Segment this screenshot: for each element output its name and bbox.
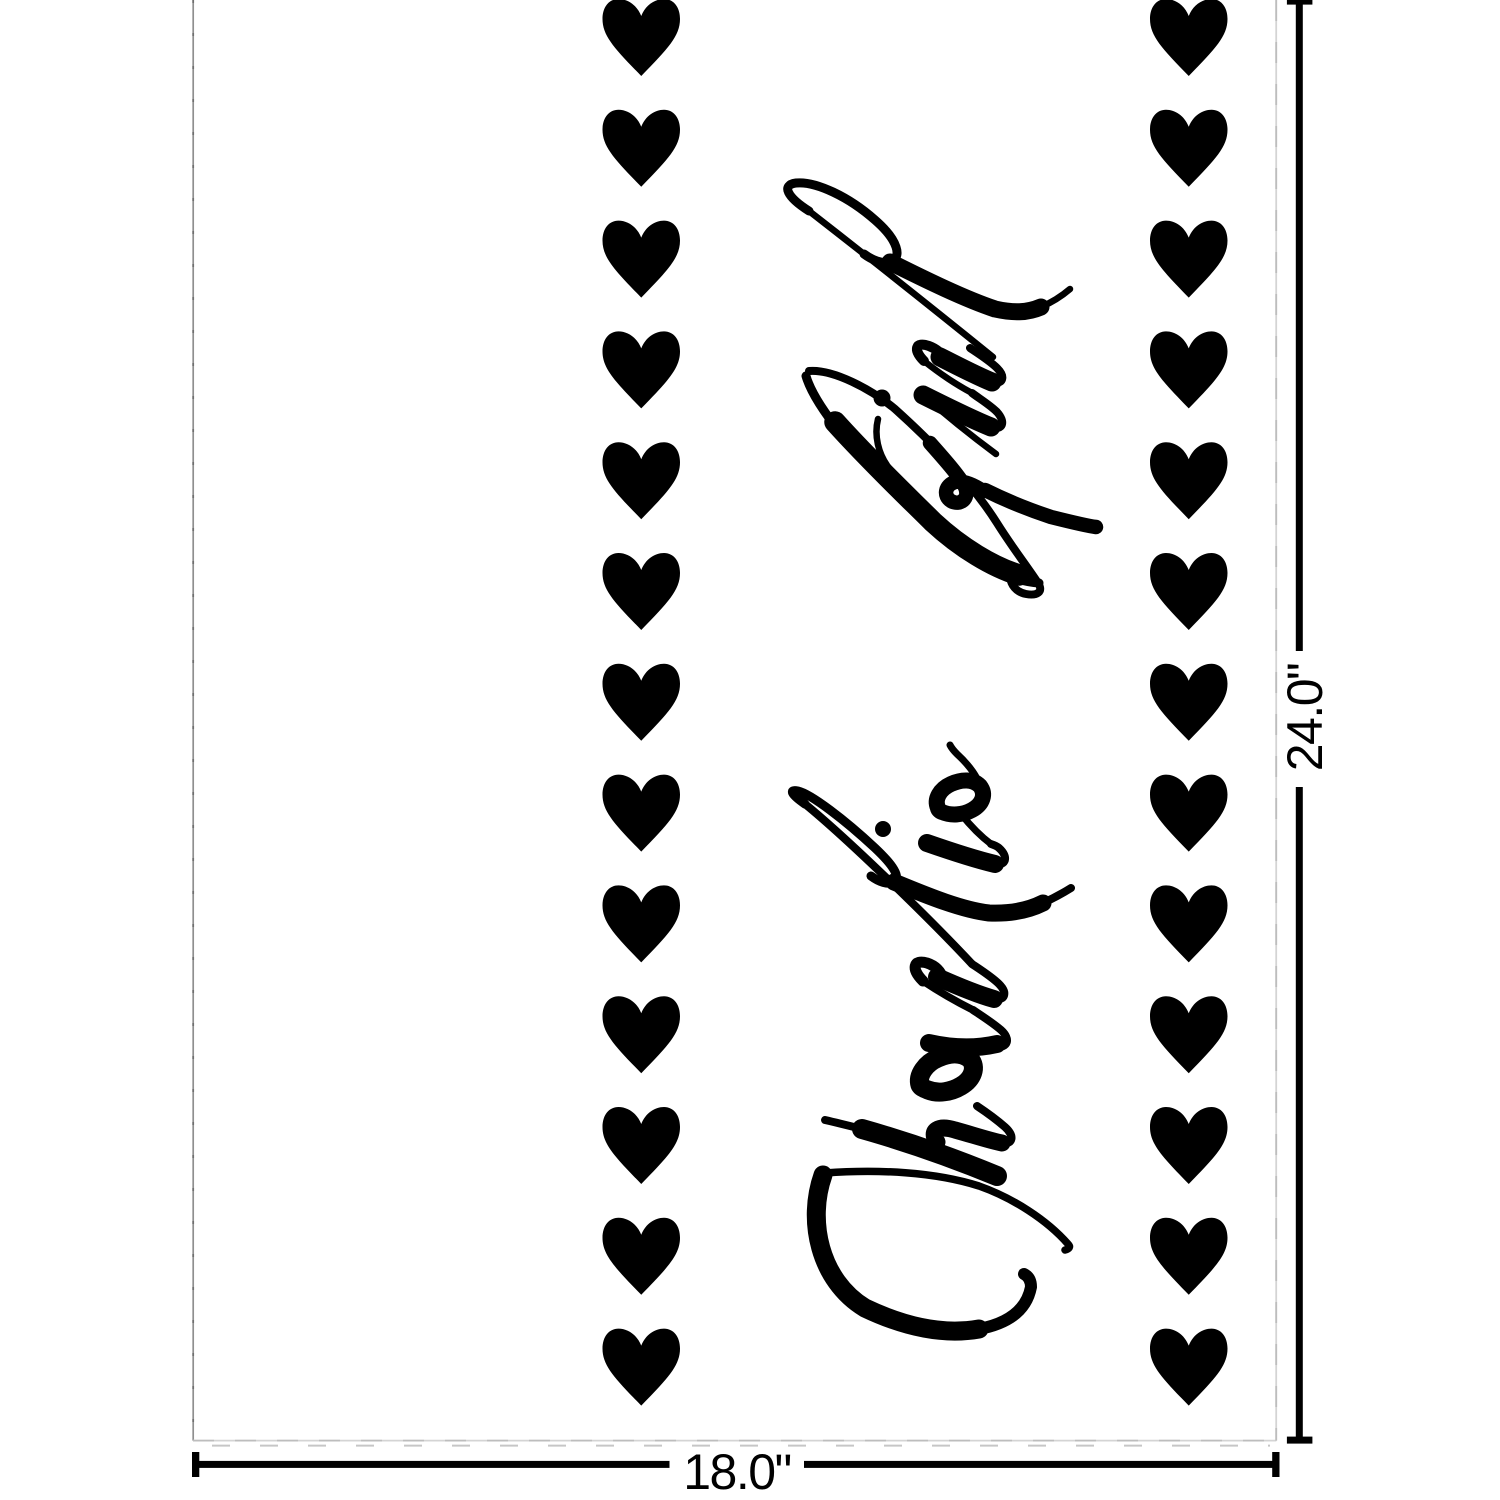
svg-text:18.0": 18.0" [683, 1444, 791, 1500]
svg-text:24.0": 24.0" [1277, 664, 1333, 772]
